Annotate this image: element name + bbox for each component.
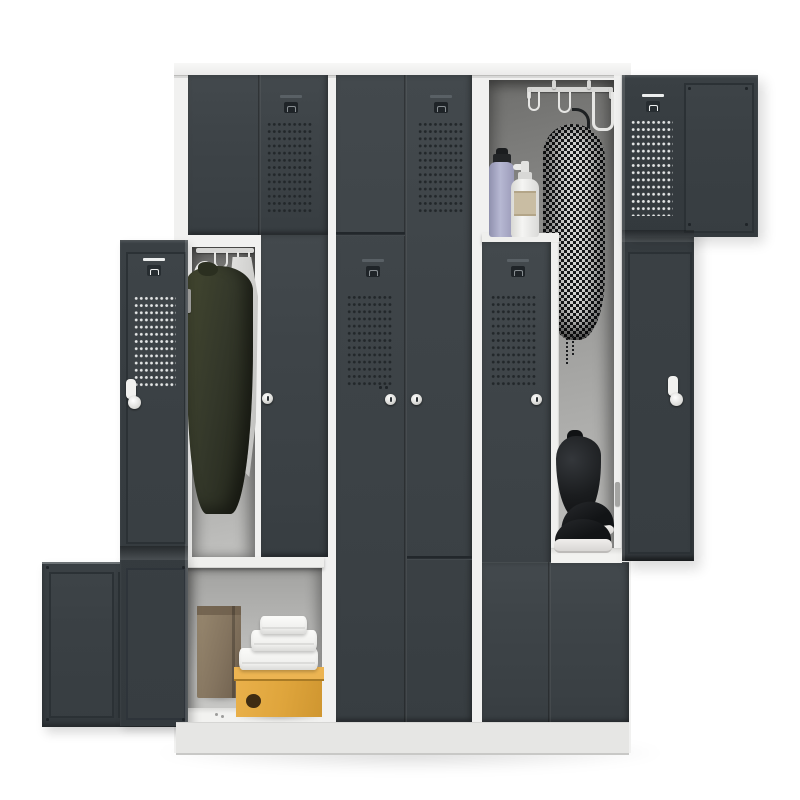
door-screw (745, 223, 748, 226)
handle-bar (362, 259, 384, 262)
door-handle (429, 95, 453, 114)
paper-bag-crease (232, 606, 235, 698)
door-screw (688, 223, 691, 226)
col1-step-edge (186, 557, 324, 568)
door-gap-left (336, 232, 405, 236)
handle-cup (284, 102, 298, 113)
door-inner-panel (49, 572, 114, 718)
door-screw (745, 87, 748, 90)
latch-keeper (615, 482, 620, 506)
door-crease (404, 75, 407, 722)
lock-cylinder (385, 394, 396, 405)
vent-perforation (418, 122, 464, 216)
door-screw (46, 566, 49, 569)
hook-rail-stem (552, 80, 556, 89)
s-hook (558, 92, 571, 113)
vent-perforation (347, 295, 393, 389)
folded-towel-small (260, 616, 307, 634)
handle-cup (366, 266, 380, 277)
s-hook (528, 92, 540, 111)
folded-towel-large (239, 648, 318, 670)
door-screw (379, 386, 382, 389)
cam-lock-knob (670, 393, 683, 406)
handle-bar (642, 94, 664, 97)
yellow-shoebox (236, 667, 322, 717)
jacket-collar (198, 262, 218, 276)
door-screw (182, 566, 185, 569)
door-fold-band (120, 546, 188, 560)
door-screw (182, 718, 185, 721)
lock-cylinder (411, 394, 422, 405)
door-screw (385, 386, 388, 389)
door-hinge-edge (185, 240, 188, 726)
lock-cylinder (531, 394, 542, 405)
handle-bar (430, 95, 452, 98)
door-handle-inner (142, 258, 166, 277)
lock-cylinder (262, 393, 273, 404)
locker-product-photo (0, 0, 800, 800)
door-crease (548, 562, 551, 722)
hook-rail-stem (587, 80, 591, 89)
olive-jacket (187, 266, 253, 514)
door-fold-band (622, 230, 694, 242)
bottle-label (514, 191, 536, 216)
sneaker-front-sole (554, 539, 612, 553)
vent-perforation-backlit (134, 296, 176, 388)
handle-cup (434, 102, 448, 113)
door-bottom-shadow (622, 555, 694, 561)
door-gap-right (407, 556, 472, 560)
handle-bar (280, 95, 302, 98)
door-screw (46, 718, 49, 721)
door-screw (688, 87, 691, 90)
door-inner-panel (684, 83, 754, 233)
handle-cup (646, 101, 660, 112)
door-inner-panel (126, 568, 186, 720)
handle-bar (143, 258, 165, 261)
handle-bar (507, 259, 529, 262)
door-handle (279, 95, 303, 114)
door-handle (361, 259, 385, 278)
coat-cord (566, 338, 570, 364)
door-handle (506, 259, 530, 278)
frame-divider (551, 242, 559, 548)
vent-perforation (267, 122, 313, 216)
vent-perforation (491, 295, 537, 389)
handle-cup (511, 266, 525, 277)
floor-vent-holes (215, 713, 218, 716)
col3-lower-door-bottom (482, 562, 629, 723)
door-hinge-edge (622, 75, 625, 561)
door-handle-inner (641, 94, 665, 113)
cabinet-plinth (176, 722, 629, 755)
door-inner-panel (628, 252, 692, 554)
coat-cord (572, 336, 576, 355)
vent-perforation-backlit (631, 120, 673, 216)
door-crease (258, 75, 261, 235)
floor-vent-holes (221, 715, 224, 718)
s-hook-large (592, 92, 614, 131)
cam-lock-knob (128, 396, 141, 409)
handle-cup (147, 265, 161, 276)
